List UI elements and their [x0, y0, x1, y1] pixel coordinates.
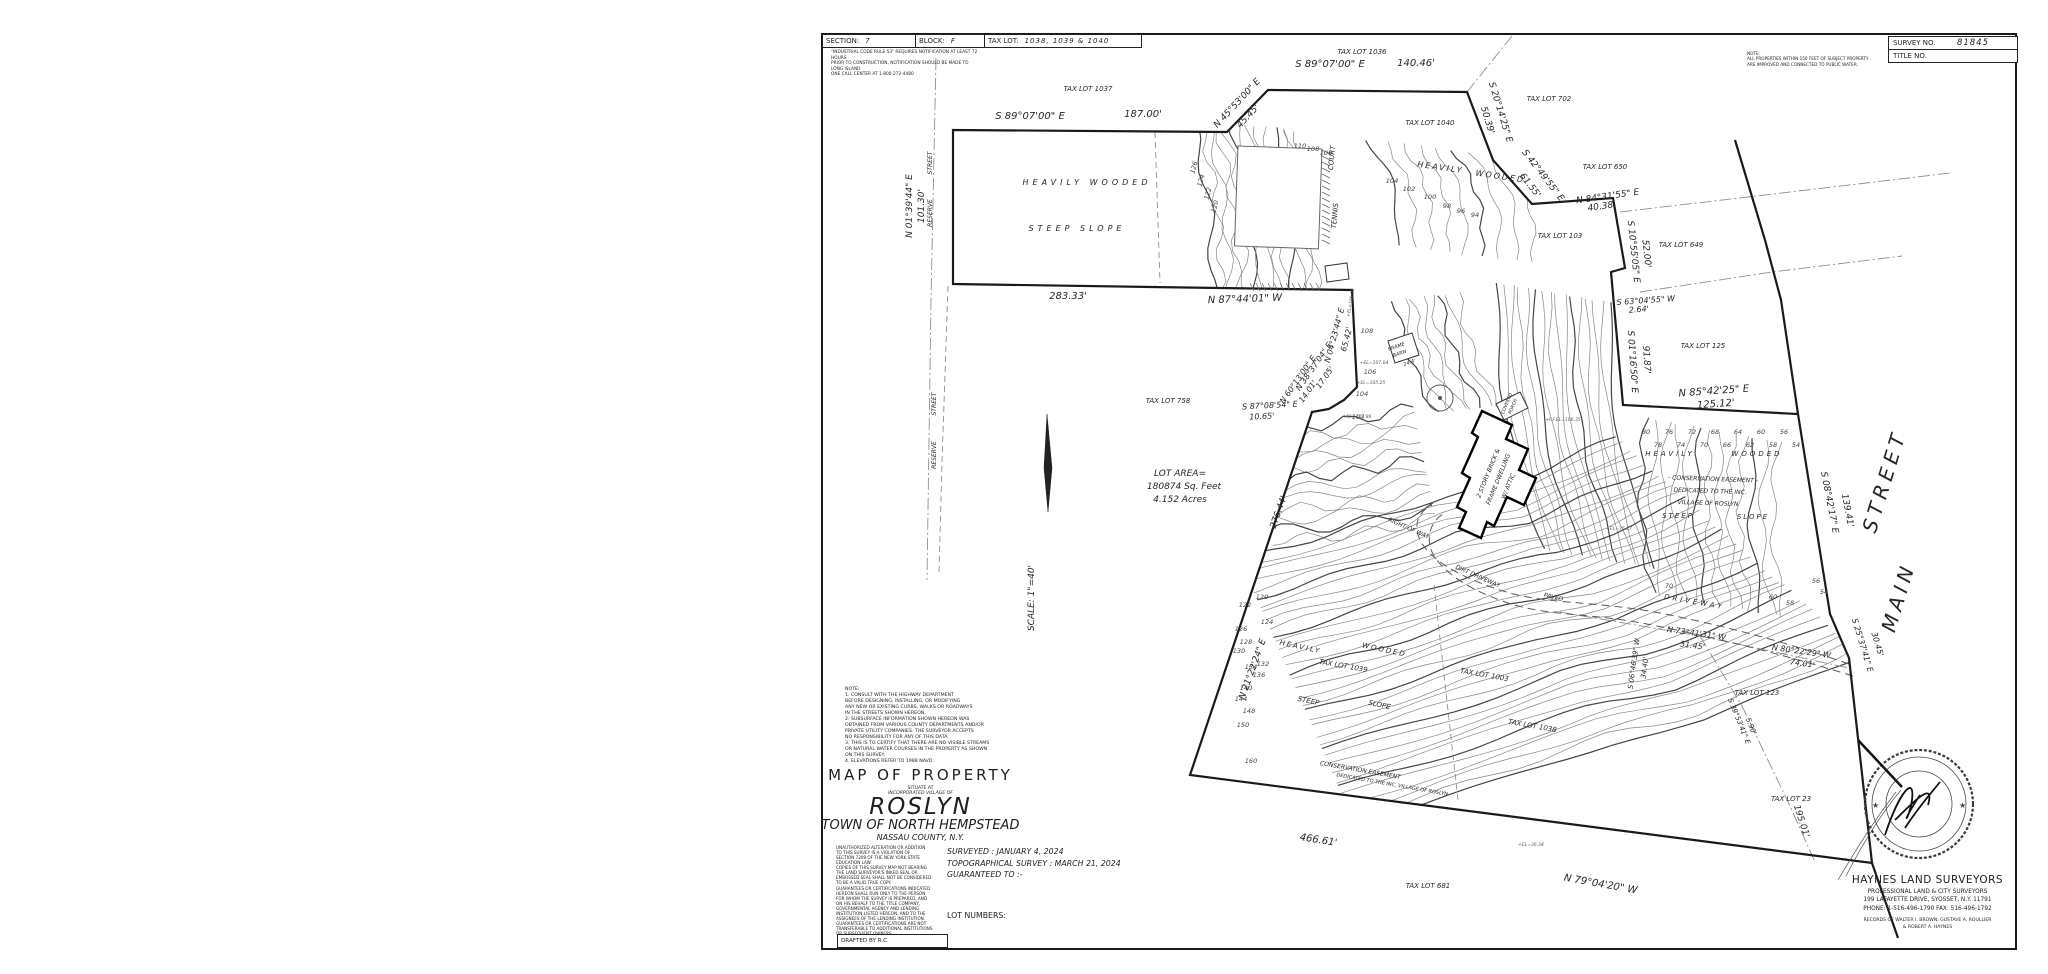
map-label: 180874 Sq. Feet: [1147, 482, 1222, 492]
header-block-cell: BLOCK: F: [916, 35, 985, 47]
contour-elevation-label: 70: [1700, 441, 1708, 449]
contour-elevation-label: 102: [1403, 185, 1415, 193]
map-label: STEEP: [1662, 512, 1694, 520]
spot-elevation-label: +EL=75.17: [1606, 526, 1632, 532]
contour-elevation-label: 98: [1443, 202, 1451, 210]
contour-elevation-label: 160: [1245, 757, 1257, 765]
spot-elevation-label: +EL=107.04: [1360, 360, 1389, 366]
map-label: S 89°07'00" E: [995, 111, 1065, 122]
map-label: TAX LOT 123: [1735, 689, 1780, 697]
surveyor-records: RECORDS OF WALTER I. BROWN, GUSTAVE A. R…: [1840, 918, 2015, 931]
contour-elevation-label: 104: [1356, 390, 1368, 398]
contour-elevation-label: 68: [1711, 428, 1719, 436]
map-label: STREET: [927, 150, 934, 174]
county-name: NASSAU COUNTY, N.Y.: [818, 833, 1023, 842]
contour-elevation-label: 134: [1245, 663, 1257, 671]
map-label: LOT AREA=: [1154, 469, 1206, 479]
map-title-block: MAP OF PROPERTY SITUATE AT INCORPORATED …: [818, 766, 1023, 842]
shed-footprint: [1325, 263, 1349, 282]
title-no-label: TITLE NO.: [1893, 52, 1927, 60]
map-label: TAX LOT 702: [1527, 95, 1572, 103]
contour-elevation-label: 144: [1235, 695, 1247, 703]
contour-elevation-label: 132: [1257, 660, 1269, 668]
section-value: 7: [865, 37, 870, 45]
contour-elevation-label: 64: [1734, 428, 1742, 436]
drafted-by-box: DRAFTED BY R.C.: [837, 934, 948, 948]
surveyor-address: PROFESSIONAL LAND & CITY SURVEYORS 199 L…: [1840, 888, 2015, 913]
contour-elevation-label: 110: [1294, 142, 1306, 150]
contour-elevation-label: 122: [1239, 601, 1251, 609]
legal-notice: UNAUTHORIZED ALTERATION OR ADDITION TO T…: [836, 845, 951, 936]
contour-elevation-label: 60: [1757, 428, 1765, 436]
contour-elevation-label: 56: [1780, 428, 1788, 436]
map-label: 140.46': [1397, 58, 1435, 69]
map-label: 91.87': [1640, 345, 1652, 374]
survey-no-value: 81845: [1957, 38, 1989, 48]
taxlot-value: 1038, 1039 & 1040: [1025, 37, 1110, 45]
map-label: 10.65': [1249, 411, 1275, 421]
contour-elevation-label: 76: [1665, 428, 1673, 436]
header-section-cell: SECTION: 7: [823, 35, 916, 47]
header-taxlot-cell: TAX LOT: 1038, 1039 & 1040: [985, 35, 1141, 47]
section-label: SECTION:: [826, 37, 859, 45]
contour-elevation-label: 80: [1642, 428, 1650, 436]
map-label: TAX LOT 103: [1538, 232, 1583, 240]
contour-elevation-label: 66: [1723, 441, 1731, 449]
contour-elevation-label: 102: [1352, 413, 1364, 421]
map-label: SLOPE: [1737, 513, 1769, 521]
map-label: WOODED: [1731, 450, 1782, 458]
contour-elevation-label: 58: [1786, 599, 1794, 607]
survey-no-row: SURVEY NO. 81845: [1889, 37, 2017, 50]
map-label: TAX LOT 681: [1406, 882, 1451, 890]
utility-notice: "INDUSTRIAL CODE RULE 53" REQUIRES NOTIF…: [831, 50, 1011, 78]
contour-elevation-label: 78: [1654, 441, 1662, 449]
contour-elevation-label: 96: [1457, 207, 1465, 215]
general-notes: NOTE: 1. CONSULT WITH THE HIGHWAY DEPART…: [845, 687, 1025, 765]
contour-elevation-label: 56: [1812, 577, 1820, 585]
contour-elevation-label: 106: [1364, 368, 1376, 376]
contour-elevation-label: 58: [1769, 441, 1777, 449]
map-label: S 89°07'00" E: [1295, 59, 1365, 70]
lot-numbers-label: LOT NUMBERS:: [947, 911, 1006, 920]
block-value: F: [951, 37, 956, 45]
contour-elevation-label: 108: [1361, 327, 1373, 335]
map-label: STEEP SLOPE: [1029, 224, 1126, 233]
spot-elevation-label: +EL=105.25: [1357, 380, 1386, 386]
contour-elevation-label: 120: [1256, 593, 1268, 601]
page-canvas: ★★N 01°39'44" E101.30'S 89°07'00" E187.0…: [0, 0, 2048, 974]
contour-elevation-label: 140: [1240, 684, 1252, 692]
place-name: ROSLYN: [818, 796, 1023, 819]
contour-elevation-label: 108: [1307, 145, 1319, 153]
map-label: TAX LOT 1036: [1338, 48, 1387, 56]
map-label: TAX LOT 649: [1659, 241, 1704, 249]
contour-elevation-label: 124: [1261, 618, 1273, 626]
contour-elevation-label: 126: [1235, 625, 1247, 633]
surveyor-block: HAYNES LAND SURVEYORS PROFESSIONAL LAND …: [1840, 874, 2015, 931]
contour-elevation-label: 74: [1677, 441, 1685, 449]
map-label: HEAVILY WOODED: [1023, 178, 1152, 187]
taxlot-label: TAX LOT:: [988, 37, 1019, 45]
map-label: TAX LOT 125: [1681, 342, 1726, 350]
contour-elevation-label: 70: [1665, 582, 1673, 590]
map-label: TAX LOT 758: [1146, 397, 1191, 405]
map-label: STREET: [931, 391, 938, 415]
block-label: BLOCK:: [919, 37, 945, 45]
public-water-note: NOTE: ALL PROPERTIES WITHIN 150 FEET OF …: [1747, 51, 1887, 67]
contour-elevation-label: 100: [1424, 193, 1436, 201]
contour-elevation-label: 150: [1237, 721, 1249, 729]
surveyor-name: HAYNES LAND SURVEYORS: [1840, 874, 2015, 886]
map-title: MAP OF PROPERTY: [818, 766, 1023, 784]
map-label: 2.64': [1629, 304, 1650, 314]
spot-elevation-label: +F.F.EL=106.35: [1545, 417, 1581, 423]
contour-elevation-label: 94: [1471, 211, 1479, 219]
contour-elevation-label: 54: [1820, 588, 1828, 596]
spot-elevation-label: +EL=36.34: [1518, 842, 1544, 848]
survey-map-drawing: ★★N 01°39'44" E101.30'S 89°07'00" E187.0…: [0, 0, 2048, 974]
contour-elevation-label: 148: [1243, 707, 1255, 715]
contour-elevation-label: 54: [1792, 441, 1800, 449]
survey-no-label: SURVEY NO.: [1893, 39, 1935, 47]
map-label: HEAVILY: [1645, 450, 1695, 458]
map-label: TAX LOT 650: [1583, 163, 1628, 171]
map-label: RESERVE: [931, 441, 938, 469]
seal-star-icon: ★: [1959, 801, 1966, 810]
contour-elevation-label: 106: [1320, 149, 1332, 157]
map-label: N 01°39'44" E: [905, 174, 915, 238]
town-name: TOWN OF NORTH HEMPSTEAD: [818, 819, 1023, 833]
sheet-header-box: SECTION: 7 BLOCK: F TAX LOT: 1038, 1039 …: [822, 34, 1142, 48]
contour-elevation-label: 60: [1769, 593, 1777, 601]
map-label: 101.30': [917, 189, 927, 223]
map-label: TAX LOT 23: [1771, 795, 1811, 803]
title-no-row: TITLE NO.: [1889, 50, 2017, 62]
survey-dates: SURVEYED : JANUARY 4, 2024 TOPOGRAPHICAL…: [947, 846, 1121, 881]
map-label: RESERVE: [927, 199, 934, 227]
tennis-court: [1235, 146, 1322, 249]
survey-number-box: SURVEY NO. 81845 TITLE NO.: [1888, 36, 2018, 63]
contour-elevation-label: 104: [1386, 177, 1398, 185]
contour-elevation-label: 136: [1253, 671, 1265, 679]
seal-star-icon: ★: [1872, 801, 1879, 810]
contour-elevation-label: 130: [1233, 647, 1245, 655]
turnaround-center: [1438, 396, 1442, 400]
map-label: 4.152 Acres: [1153, 495, 1207, 505]
map-label: SCALE: 1"=40': [1027, 565, 1037, 631]
map-label: TAX LOT 1040: [1406, 119, 1455, 127]
map-label: TAX LOT 1037: [1064, 85, 1113, 93]
map-label: 187.00': [1124, 109, 1162, 120]
contour-elevation-label: 72: [1688, 428, 1696, 436]
contour-elevation-label: 62: [1746, 441, 1754, 449]
contour-elevation-label: 128: [1240, 638, 1252, 646]
map-label: 283.33': [1049, 291, 1087, 302]
